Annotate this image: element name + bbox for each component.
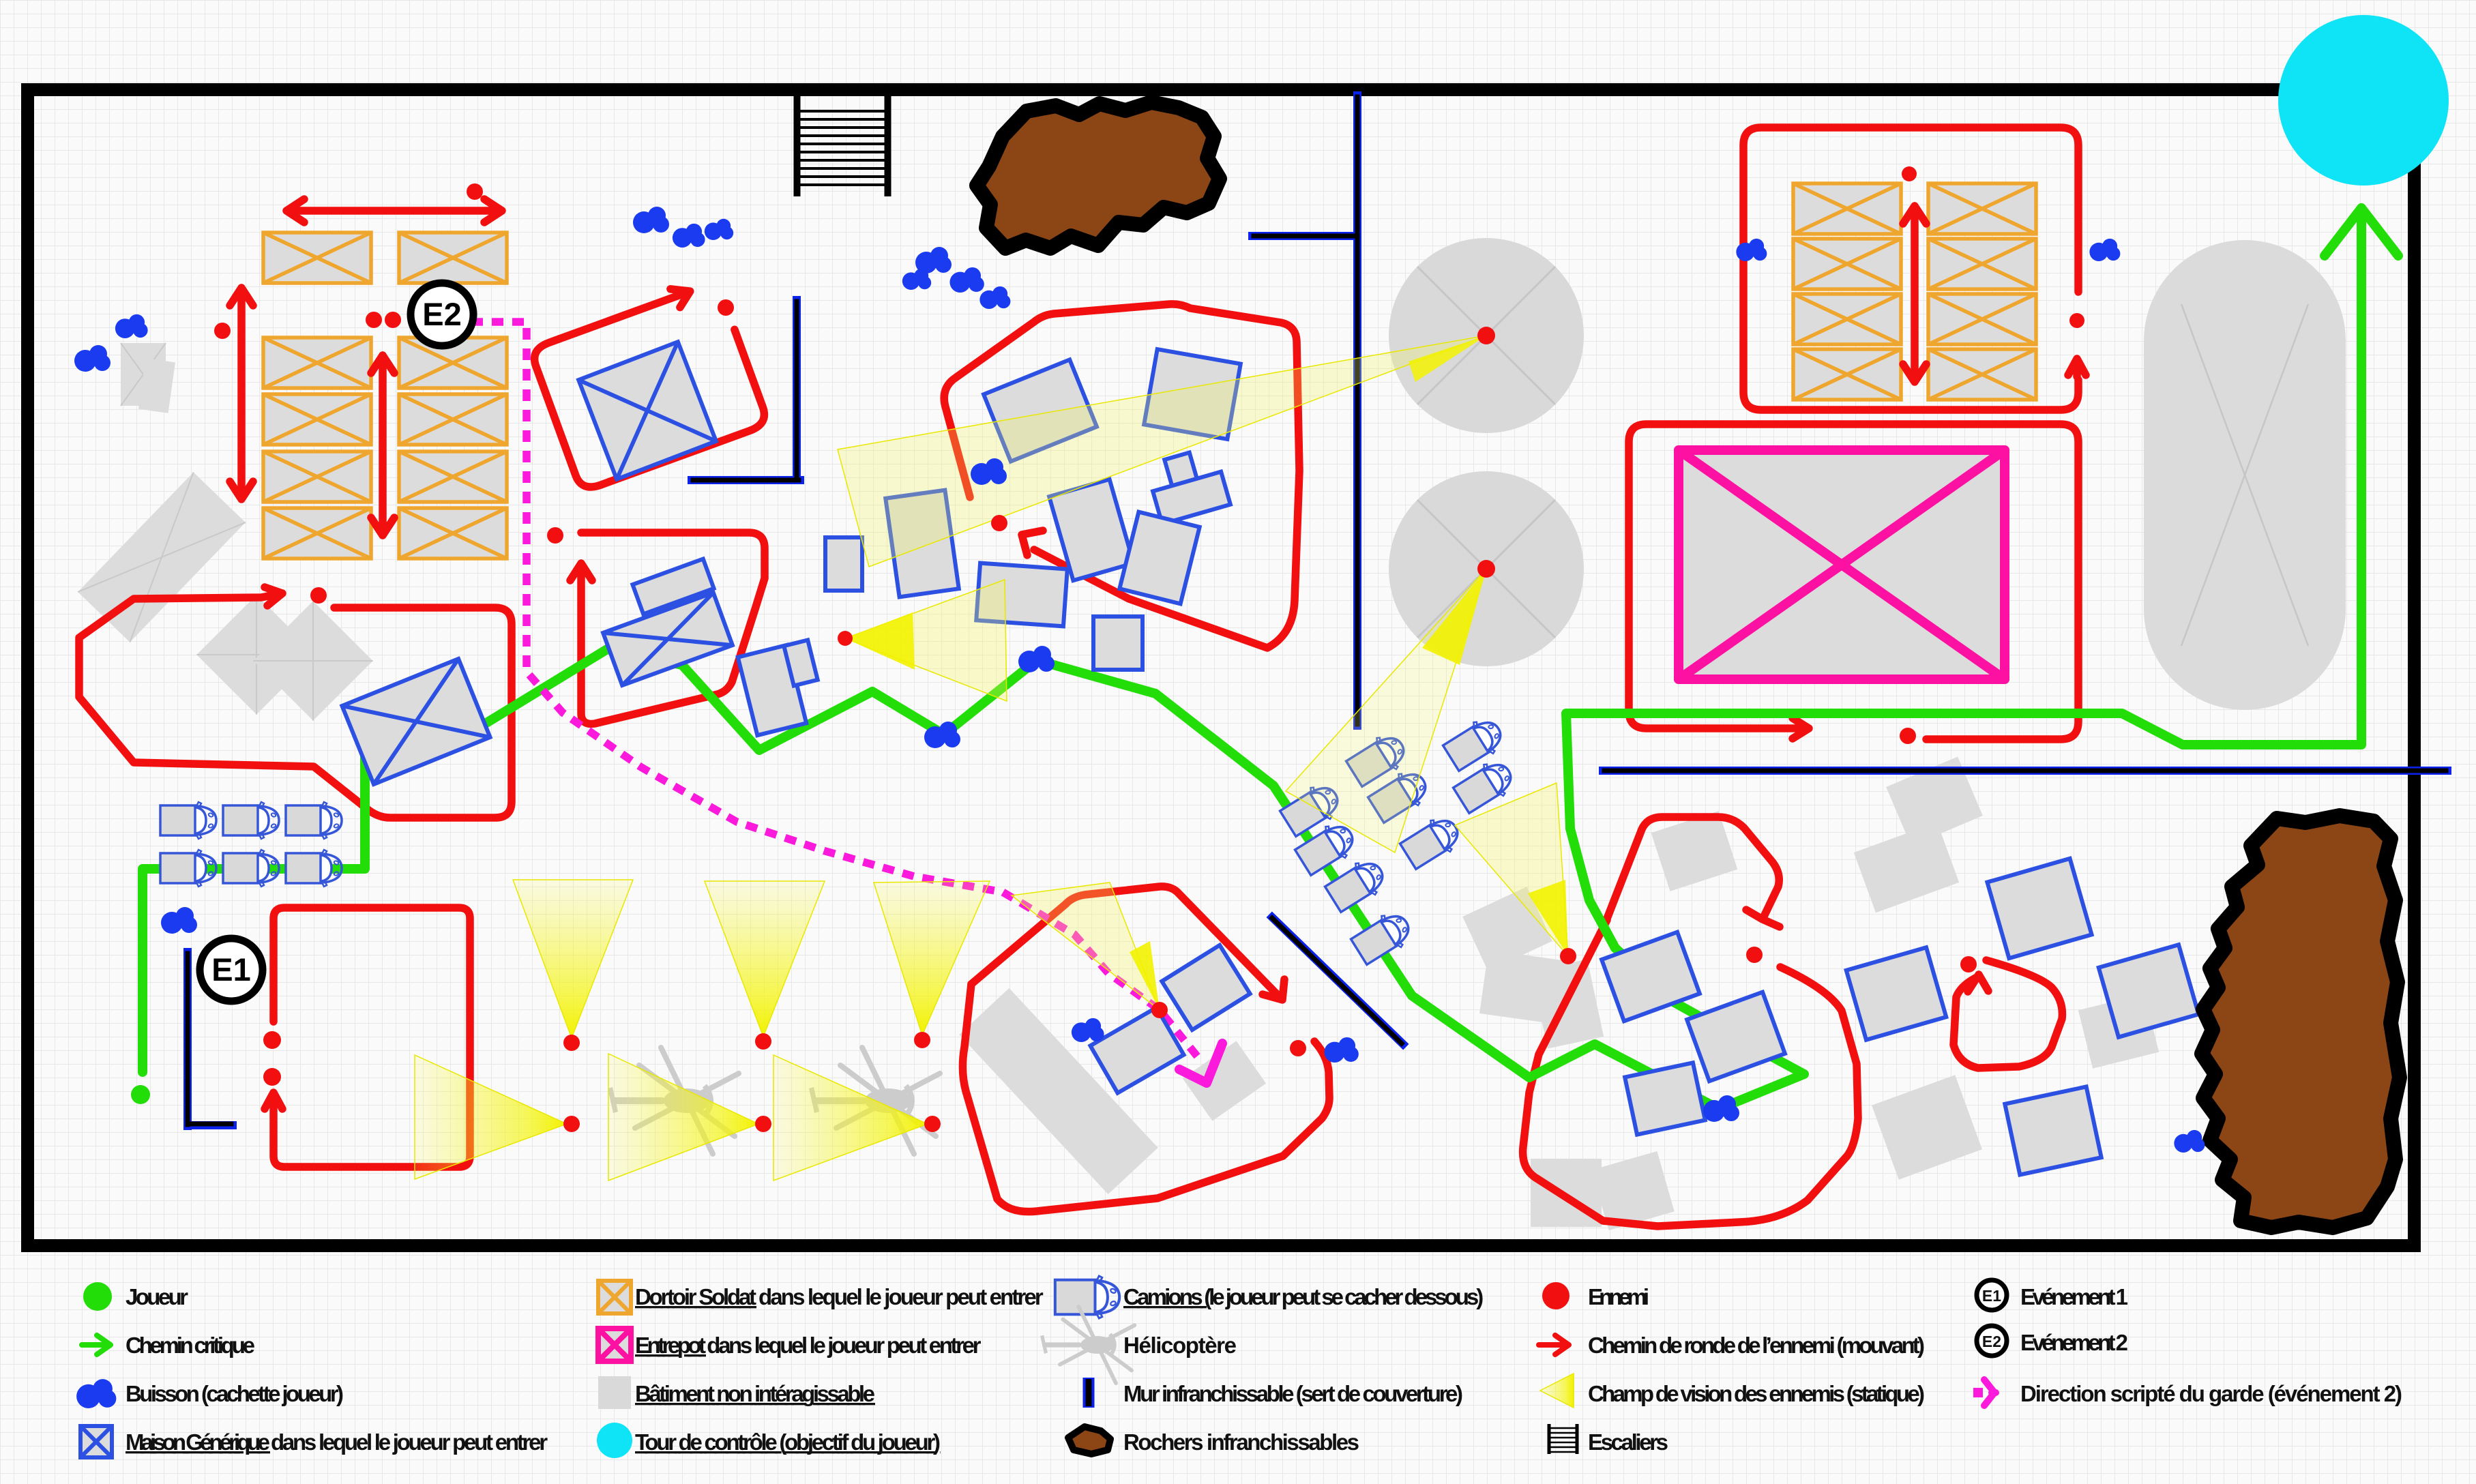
svg-text:Camions (le joueur peut se cac: Camions (le joueur peut se cacher dessou… [1123, 1284, 1484, 1309]
svg-text:Hélicoptère: Hélicoptère [1123, 1333, 1237, 1358]
svg-text:Evénement 1: Evénement 1 [2020, 1284, 2128, 1309]
svg-text:Dortoir Soldat dans lequel le: Dortoir Soldat dans lequel le joueur peu… [635, 1284, 1044, 1309]
svg-text:E1: E1 [1982, 1287, 2001, 1305]
svg-text:Champ de vision des ennemis (s: Champ de vision des ennemis (statique) [1588, 1381, 1925, 1406]
svg-text:Escaliers: Escaliers [1588, 1429, 1668, 1455]
svg-text:Chemin de ronde de l’ennemi (m: Chemin de ronde de l’ennemi (mouvant) [1588, 1333, 1925, 1358]
svg-text:Joueur: Joueur [126, 1284, 188, 1309]
svg-text:Rochers infranchissables: Rochers infranchissables [1123, 1429, 1359, 1455]
svg-text:Maison Générique dans lequel l: Maison Générique dans lequel le joueur p… [126, 1429, 548, 1455]
svg-text:E1: E1 [211, 951, 251, 988]
svg-text:E2: E2 [1982, 1333, 2001, 1350]
svg-text:Entrepot dans lequel le joueur: Entrepot dans lequel le joueur peut entr… [635, 1333, 982, 1358]
svg-text:Direction scripté du garde (év: Direction scripté du garde (événement 2) [2020, 1381, 2402, 1406]
svg-text:E2: E2 [422, 296, 462, 332]
svg-text:Ennemi: Ennemi [1588, 1284, 1649, 1309]
svg-text:Mur infranchissable (sert de c: Mur infranchissable (sert de couverture) [1123, 1381, 1463, 1406]
svg-text:Bâtiment non intéragissable: Bâtiment non intéragissable [635, 1381, 875, 1406]
svg-text:Evénement 2: Evénement 2 [2020, 1330, 2128, 1355]
svg-text:Tour de contrôle (objectif du: Tour de contrôle (objectif du joueur) [635, 1429, 941, 1455]
svg-text:Chemin critique: Chemin critique [126, 1333, 255, 1358]
svg-text:Buisson (cachette joueur): Buisson (cachette joueur) [126, 1381, 344, 1406]
